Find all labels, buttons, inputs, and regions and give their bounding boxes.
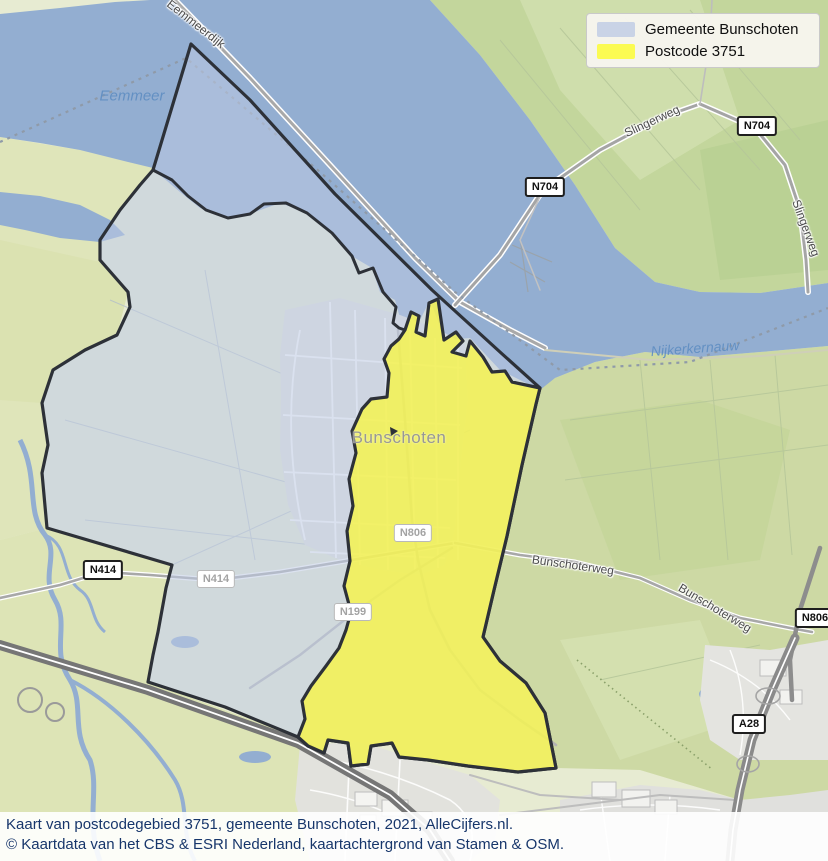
legend: Gemeente Bunschoten Postcode 3751 — [586, 13, 820, 68]
map-screenshot: Eemmeer Nijkerkernauw Eemmeerdijk Slinge… — [0, 0, 828, 861]
road-shield-a28: A28 — [732, 714, 766, 734]
legend-item-postcode: Postcode 3751 — [597, 43, 809, 60]
road-shield-n414-east: N414 — [197, 570, 235, 588]
road-shield-n704-east: N704 — [737, 116, 777, 136]
legend-swatch-gemeente — [597, 22, 635, 37]
road-shield-n414-west: N414 — [83, 560, 123, 580]
legend-item-gemeente: Gemeente Bunschoten — [597, 21, 809, 38]
caption-line-1: Kaart van postcodegebied 3751, gemeente … — [6, 816, 513, 833]
legend-label-postcode: Postcode 3751 — [645, 43, 745, 60]
caption-line-2: © Kaartdata van het CBS & ESRI Nederland… — [6, 836, 564, 853]
road-shield-n806-center: N806 — [394, 524, 432, 542]
legend-swatch-postcode — [597, 44, 635, 59]
road-shield-n199: N199 — [334, 603, 372, 621]
road-shield-n806-east: N806 — [795, 608, 828, 628]
caption-bar: Kaart van postcodegebied 3751, gemeente … — [0, 812, 828, 861]
map-canvas[interactable] — [0, 0, 828, 861]
legend-label-gemeente: Gemeente Bunschoten — [645, 21, 798, 38]
road-shield-n704-west: N704 — [525, 177, 565, 197]
